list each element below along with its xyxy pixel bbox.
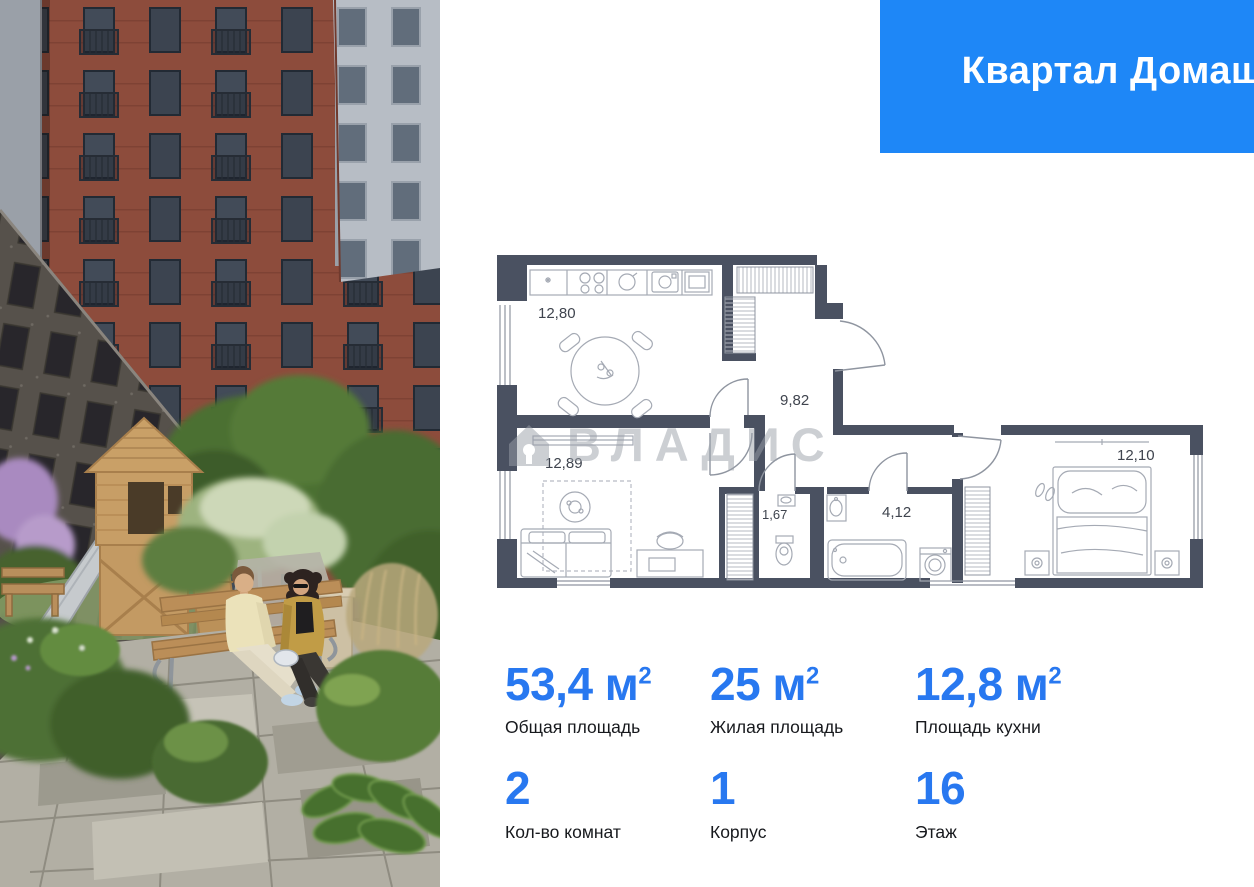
stat-living-area-value: 25 м2 — [710, 660, 915, 708]
kitchen-fixtures — [530, 270, 712, 295]
wc-fixtures — [776, 495, 795, 565]
stat-kitchen-area: 12,8 м2 Площадь кухни — [915, 660, 1120, 738]
stat-total-area-value: 53,4 м2 — [505, 660, 710, 708]
stat-living-area-label: Жилая площадь — [710, 717, 915, 738]
floor-plan: 12,80 9,82 12,89 1,67 4,12 12,10 — [497, 253, 1203, 588]
courtyard-photo — [0, 0, 440, 887]
apartment-stats: 53,4 м2 Общая площадь 25 м2 Жилая площад… — [505, 660, 1165, 843]
stat-floor-value: 16 — [915, 764, 1120, 812]
bedroom-furniture — [1025, 439, 1179, 575]
dining-table — [556, 329, 654, 419]
stat-building-label: Корпус — [710, 822, 915, 843]
shrub-center — [152, 720, 268, 804]
stat-rooms-count-label: Кол-во комнат — [505, 822, 710, 843]
stat-rooms-count: 2 Кол-во комнат — [505, 764, 710, 842]
header: Квартал Домашний самолет — [880, 0, 1254, 153]
room-area-label-wc: 1,67 — [762, 507, 787, 522]
room-area-label-bedroom: 12,10 — [1117, 447, 1155, 464]
stat-floor-label: Этаж — [915, 822, 1120, 843]
plan-walls — [497, 255, 1203, 588]
light-building — [333, 0, 440, 282]
stat-building-value: 1 — [710, 764, 915, 812]
room-area-label-kitchen: 12,80 — [538, 305, 576, 322]
project-title: Квартал Домашний — [962, 50, 1254, 93]
stat-floor: 16 Этаж — [915, 764, 1120, 842]
white-bag — [274, 650, 298, 666]
stat-building: 1 Корпус — [710, 764, 915, 842]
room-area-label-bathroom: 4,12 — [882, 504, 911, 521]
room-area-label-living-room: 12,89 — [545, 455, 583, 472]
listing-panel: Квартал Домашний самолет — [440, 0, 1254, 887]
stat-total-area-label: Общая площадь — [505, 717, 710, 738]
stat-kitchen-area-label: Площадь кухни — [915, 717, 1120, 738]
stat-total-area: 53,4 м2 Общая площадь — [505, 660, 710, 738]
stat-living-area: 25 м2 Жилая площадь — [710, 660, 915, 738]
room-area-label-hallway: 9,82 — [780, 392, 809, 409]
stat-rooms-count-value: 2 — [505, 764, 710, 812]
stat-kitchen-area-value: 12,8 м2 — [915, 660, 1120, 708]
